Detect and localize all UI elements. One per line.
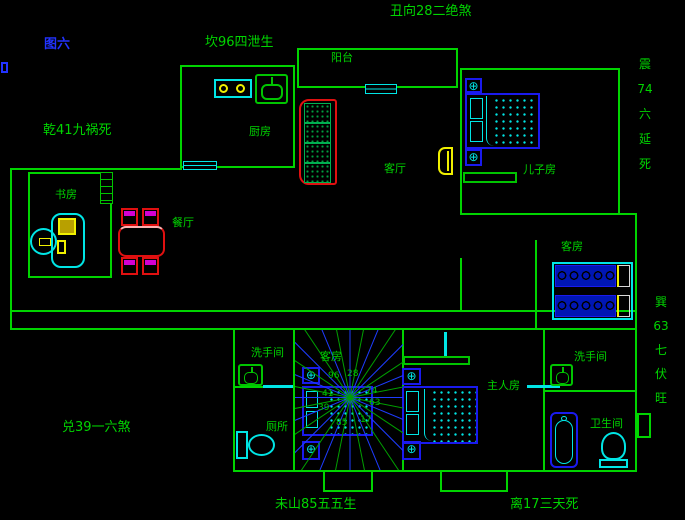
computer-monitor bbox=[58, 218, 76, 235]
wall-guest-left bbox=[535, 240, 537, 330]
dining-table bbox=[118, 226, 165, 257]
wall-bottom-outer bbox=[233, 470, 637, 472]
toilet-tank bbox=[236, 431, 248, 459]
sink-basin bbox=[556, 372, 569, 384]
pillow bbox=[406, 414, 419, 435]
door-leaf bbox=[444, 332, 447, 358]
bathtub bbox=[550, 412, 578, 468]
mattress-dots bbox=[431, 389, 476, 442]
pillow bbox=[406, 391, 419, 412]
room-label-washroom-right: 洗手间 bbox=[574, 351, 607, 363]
room-label-toilet: 厕所 bbox=[266, 421, 288, 433]
toilet-bowl bbox=[248, 434, 275, 456]
compass-number: 96 bbox=[328, 371, 339, 381]
chair-seat bbox=[39, 238, 51, 246]
toilet-bowl-right bbox=[601, 432, 626, 460]
annotation-kan: 坎96四泄生 bbox=[205, 36, 274, 50]
dining-chair bbox=[142, 208, 159, 226]
fan-icon: ⊕ bbox=[402, 368, 421, 385]
pillow bbox=[470, 121, 483, 142]
bed-guest bbox=[555, 265, 616, 287]
toilet-base bbox=[599, 459, 628, 468]
door-washroom-left bbox=[263, 385, 293, 388]
fan-icon: ⊕ bbox=[465, 78, 482, 93]
porch-step bbox=[440, 470, 508, 492]
compass-number: 74 bbox=[366, 386, 377, 396]
figure-label: 图六 bbox=[44, 38, 70, 52]
wall-corridor-top bbox=[10, 310, 637, 312]
wall-left-wing-top bbox=[10, 168, 182, 170]
tv bbox=[438, 147, 453, 175]
floor-plan: 丑向28二绝煞 图六 坎96四泄生 乾41九祸死 震 74 六 延 死 巽 63… bbox=[0, 0, 685, 520]
annotation-zhen: 震 74 六 延 死 bbox=[634, 52, 656, 177]
nightstand bbox=[617, 265, 630, 287]
room-label-guest2: 客房 bbox=[320, 351, 342, 363]
room-label-dining: 餐厅 bbox=[172, 217, 194, 229]
compass-rays bbox=[295, 330, 403, 470]
keyboard bbox=[57, 240, 66, 254]
sink-basin bbox=[261, 84, 283, 100]
wall-bump bbox=[637, 413, 651, 438]
kitchen-sink bbox=[255, 74, 288, 104]
blue-marker bbox=[1, 62, 8, 73]
fan-icon: ⊕ bbox=[402, 441, 421, 460]
wall-left-outer bbox=[10, 168, 12, 330]
faucet-icon bbox=[562, 367, 564, 373]
window-kitchen bbox=[183, 161, 217, 170]
cabinet bbox=[463, 172, 517, 183]
annotation-chou: 丑向28二绝煞 bbox=[390, 5, 472, 19]
faucet-icon bbox=[271, 77, 273, 85]
annotation-xun: 巽 63 七 伏 旺 bbox=[650, 290, 672, 410]
sofa-cushion bbox=[304, 163, 331, 183]
wall-bath-divider-right bbox=[543, 390, 637, 392]
burner-icon bbox=[219, 84, 228, 93]
sofa-cushion bbox=[304, 103, 331, 123]
annotation-li: 离17三天死 bbox=[510, 498, 579, 512]
wall-segment bbox=[233, 328, 235, 472]
compass-number: 85 bbox=[336, 418, 347, 428]
sink-left bbox=[238, 364, 263, 386]
compass-number: 41 bbox=[322, 389, 333, 399]
room-label-son: 儿子房 bbox=[523, 164, 556, 176]
compass-number: 17 bbox=[360, 415, 371, 425]
stove bbox=[214, 79, 252, 98]
burner-icon bbox=[236, 84, 245, 93]
compass-number: 39 bbox=[318, 403, 329, 413]
chair-study bbox=[30, 228, 57, 255]
sink-right bbox=[550, 364, 573, 386]
shelf bbox=[403, 356, 470, 365]
sofa bbox=[299, 99, 337, 185]
drain-icon bbox=[561, 416, 567, 421]
compass-number: 63 bbox=[369, 398, 380, 408]
dining-chair bbox=[142, 257, 159, 275]
mattress-dots bbox=[493, 97, 536, 146]
dining-chair bbox=[121, 257, 138, 275]
compass-number: 28 bbox=[347, 369, 358, 379]
room-label-study: 书房 bbox=[55, 189, 77, 201]
window-vertical bbox=[100, 172, 113, 204]
bathtub-basin bbox=[555, 420, 573, 464]
tv-screen bbox=[447, 151, 449, 171]
porch-step bbox=[323, 470, 373, 492]
wall-living-right bbox=[460, 258, 462, 312]
room-label-living: 客厅 bbox=[384, 163, 406, 175]
bed-guest bbox=[555, 295, 616, 317]
nightstand bbox=[617, 295, 630, 317]
dining-chair bbox=[121, 208, 138, 226]
sofa-cushion bbox=[304, 143, 331, 163]
pillow bbox=[470, 98, 483, 119]
room-label-washroom-left: 洗手间 bbox=[251, 347, 284, 359]
wall-segment bbox=[543, 328, 545, 472]
annotation-qian: 乾41九祸死 bbox=[43, 124, 112, 138]
room-label-master: 主人房 bbox=[487, 380, 520, 392]
annotation-wei: 未山85五五生 bbox=[275, 498, 357, 512]
sink-basin bbox=[244, 372, 258, 384]
window-balcony bbox=[365, 84, 397, 94]
room-label-bathroom: 卫生间 bbox=[590, 418, 623, 430]
fan-icon: ⊕ bbox=[465, 149, 482, 166]
faucet-icon bbox=[251, 367, 253, 373]
room-label-guest: 客房 bbox=[561, 241, 583, 253]
sofa-cushion bbox=[304, 123, 331, 143]
room-label-kitchen: 厨房 bbox=[249, 126, 271, 138]
room-label-balcony: 阳台 bbox=[331, 52, 353, 64]
balcony-walls bbox=[297, 48, 458, 88]
annotation-dui: 兑39一六煞 bbox=[62, 421, 131, 435]
